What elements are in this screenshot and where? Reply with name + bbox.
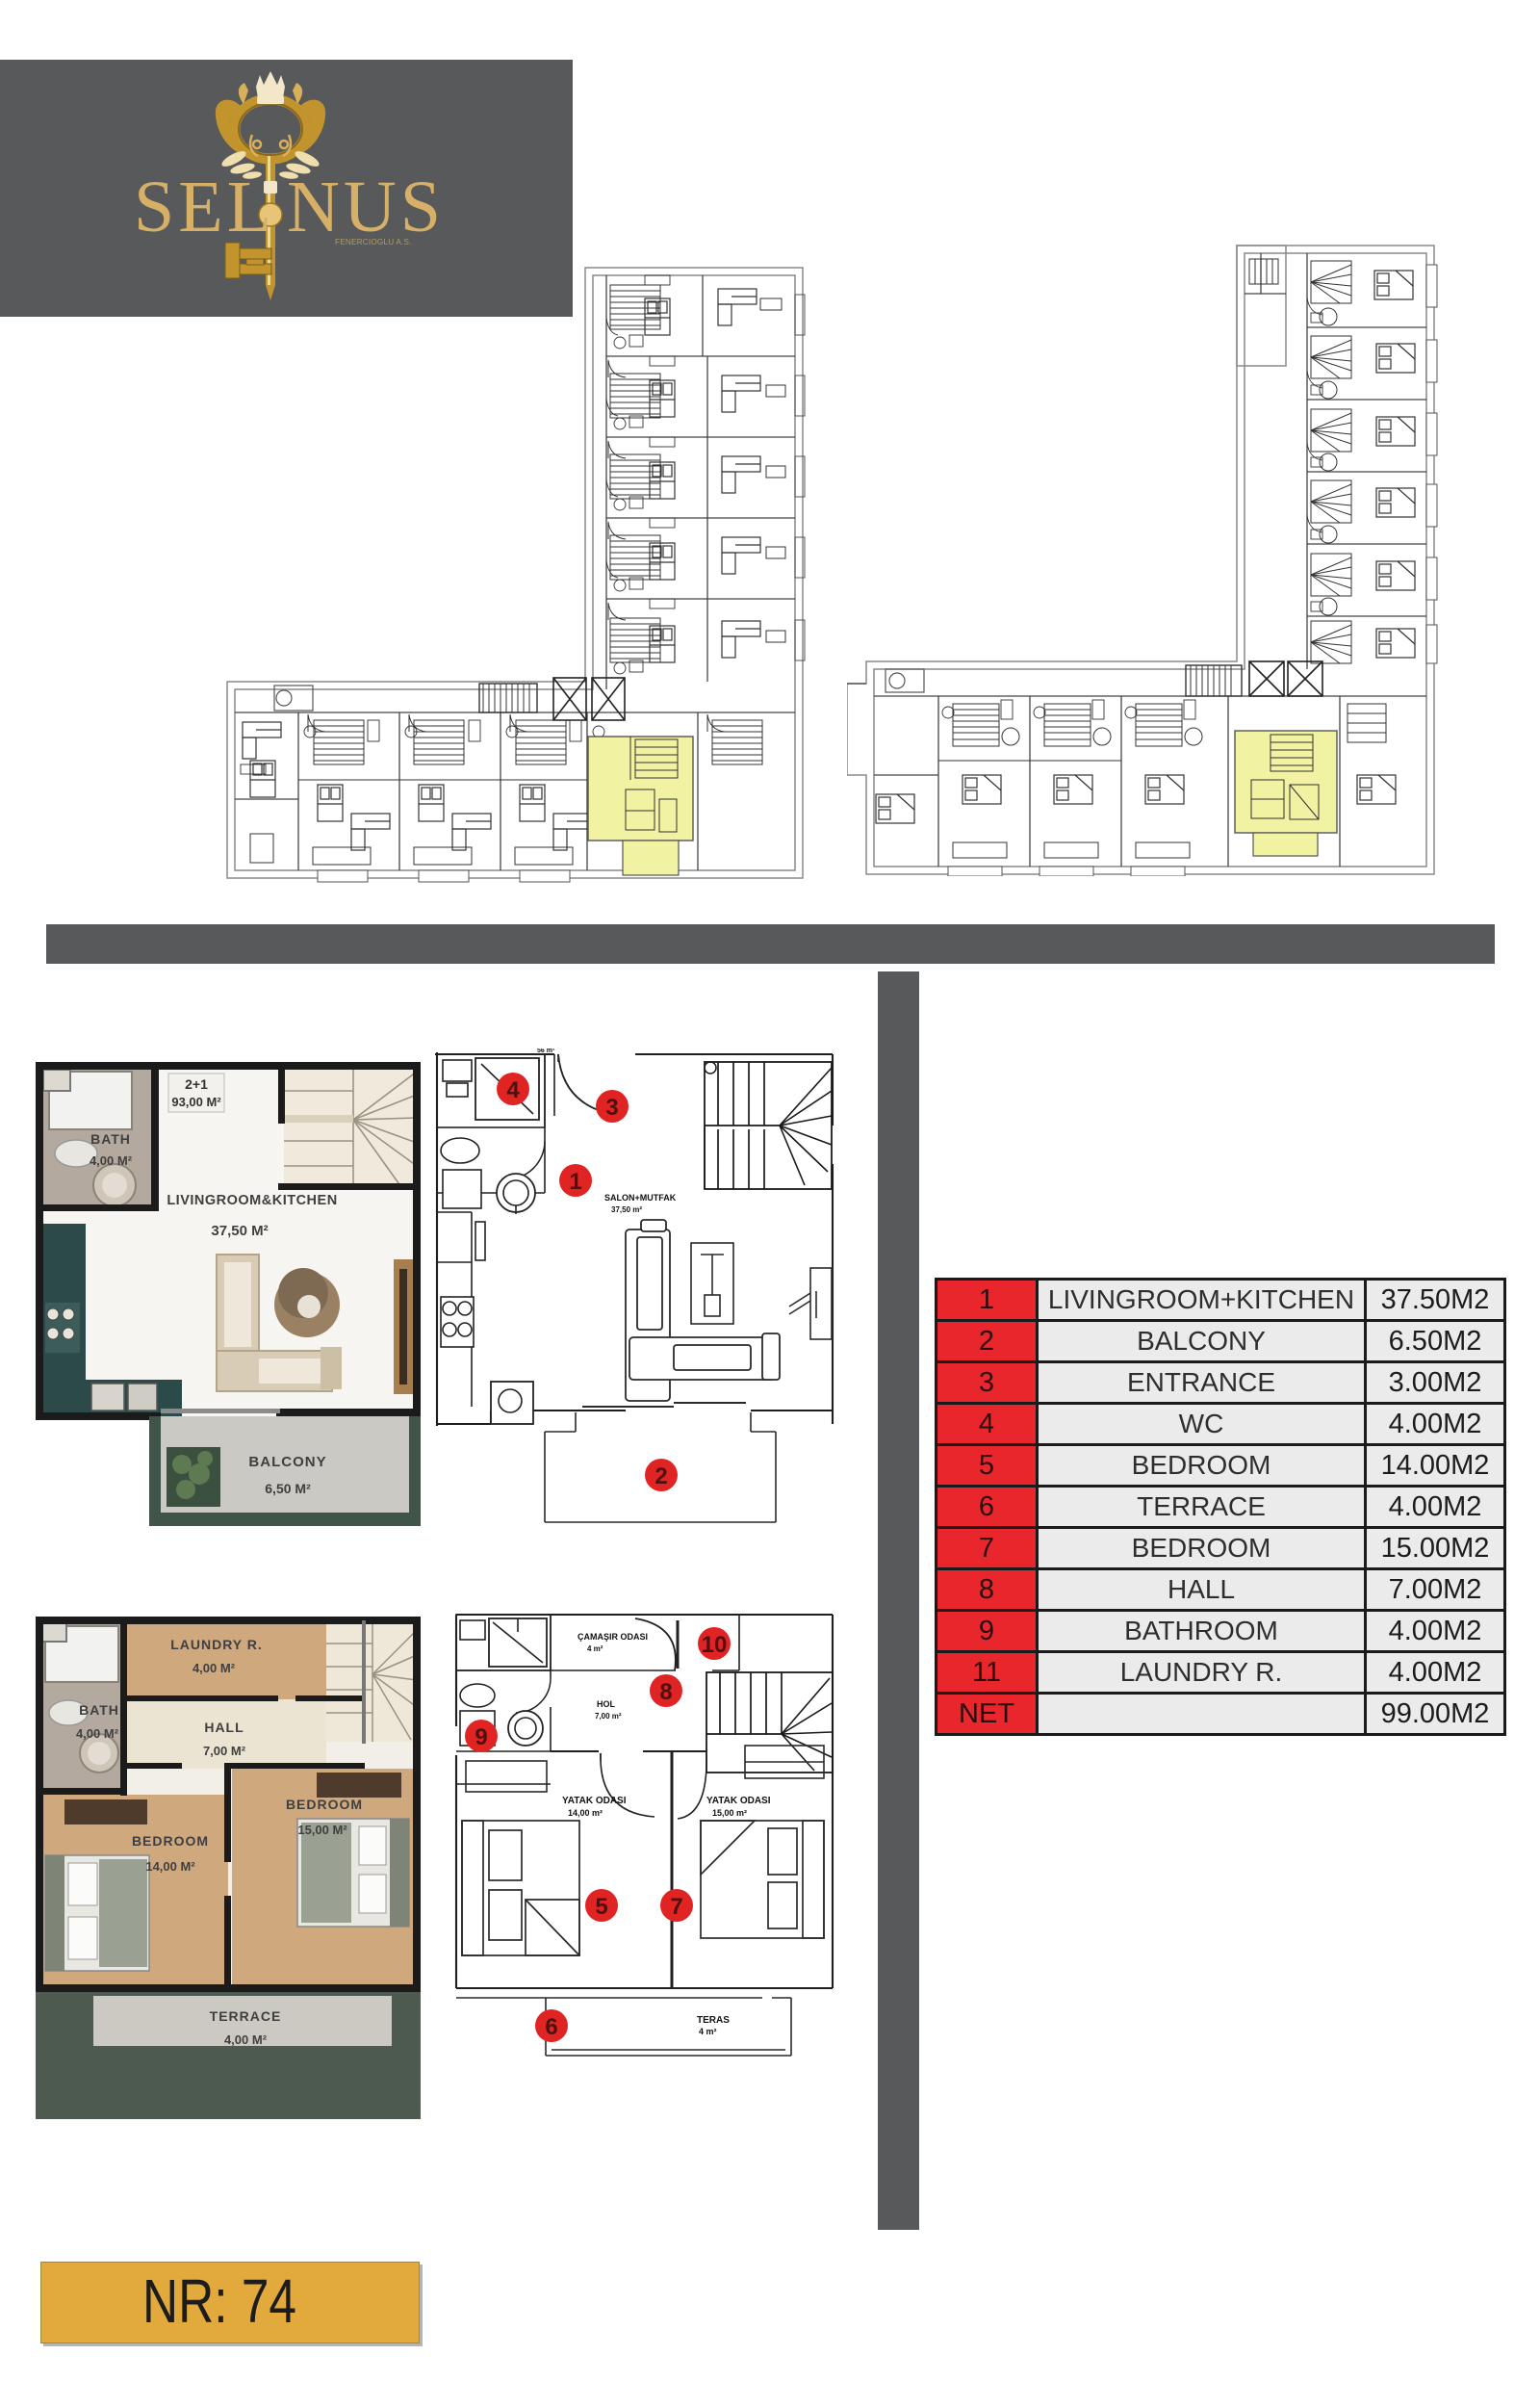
svg-text:4,00 M²: 4,00 M² — [90, 1153, 133, 1168]
svg-text:7,00 m²: 7,00 m² — [595, 1712, 622, 1721]
svg-text:15,00 M²: 15,00 M² — [297, 1823, 347, 1837]
svg-text:8: 8 — [659, 1679, 672, 1705]
svg-text:LAUNDRY R.: LAUNDRY R. — [170, 1637, 263, 1652]
svg-text:BALCONY: BALCONY — [248, 1454, 326, 1470]
svg-text:10: 10 — [702, 1632, 728, 1658]
svg-text:37,50 M²: 37,50 M² — [211, 1223, 268, 1239]
svg-text:SALON+MUTFAK: SALON+MUTFAK — [604, 1193, 677, 1203]
svg-text:4,00 M²: 4,00 M² — [76, 1726, 119, 1741]
svg-text:ÇAMAŞIR ODASI: ÇAMAŞIR ODASI — [577, 1632, 648, 1642]
svg-text:FENERCIOGLU A.S.: FENERCIOGLU A.S. — [335, 238, 412, 246]
svg-text:6,50 M²: 6,50 M² — [265, 1481, 311, 1496]
svg-text:9: 9 — [475, 1724, 487, 1750]
svg-text:14,00 m²: 14,00 m² — [568, 1808, 603, 1818]
svg-text:LIVINGROOM&KITCHEN: LIVINGROOM&KITCHEN — [167, 1193, 337, 1208]
svg-text:37,50 m²: 37,50 m² — [611, 1205, 642, 1214]
svg-text:3: 3 — [605, 1095, 618, 1121]
svg-text:HOL: HOL — [597, 1699, 616, 1709]
svg-text:2: 2 — [654, 1463, 667, 1489]
svg-text:BATH: BATH — [79, 1702, 119, 1718]
svg-text:14,00 M²: 14,00 M² — [145, 1859, 195, 1874]
svg-text:TERRACE: TERRACE — [210, 2008, 282, 2024]
svg-text:SEL: SEL — [134, 167, 275, 247]
svg-text:NUS: NUS — [287, 167, 445, 247]
svg-text:NR: 74: NR: 74 — [142, 2266, 296, 2336]
svg-text:BATH: BATH — [90, 1131, 131, 1147]
svg-text:TERAS: TERAS — [697, 2015, 730, 2026]
svg-text:4 m²: 4 m² — [699, 2027, 717, 2036]
svg-text:7,00 M²: 7,00 M² — [203, 1744, 246, 1758]
svg-text:1: 1 — [569, 1169, 581, 1195]
svg-text:BEDROOM: BEDROOM — [132, 1833, 209, 1849]
svg-text:4,00 M²: 4,00 M² — [192, 1661, 236, 1675]
svg-text:YATAK ODASI: YATAK ODASI — [562, 1796, 627, 1806]
svg-text:56 m²: 56 m² — [537, 1048, 555, 1054]
svg-text:93,00 M²: 93,00 M² — [171, 1095, 221, 1109]
svg-text:15,00 m²: 15,00 m² — [712, 1808, 747, 1818]
svg-text:2+1: 2+1 — [185, 1076, 208, 1092]
svg-text:4,00 M²: 4,00 M² — [224, 2032, 268, 2047]
svg-text:YATAK ODASI: YATAK ODASI — [706, 1796, 771, 1806]
svg-text:BEDROOM: BEDROOM — [286, 1797, 363, 1812]
svg-text:7: 7 — [670, 1894, 682, 1920]
svg-text:6: 6 — [545, 2014, 557, 2040]
svg-text:HALL: HALL — [204, 1720, 244, 1735]
svg-text:5: 5 — [595, 1894, 607, 1920]
svg-text:4 m²: 4 m² — [587, 1644, 603, 1653]
svg-text:4: 4 — [506, 1077, 520, 1103]
